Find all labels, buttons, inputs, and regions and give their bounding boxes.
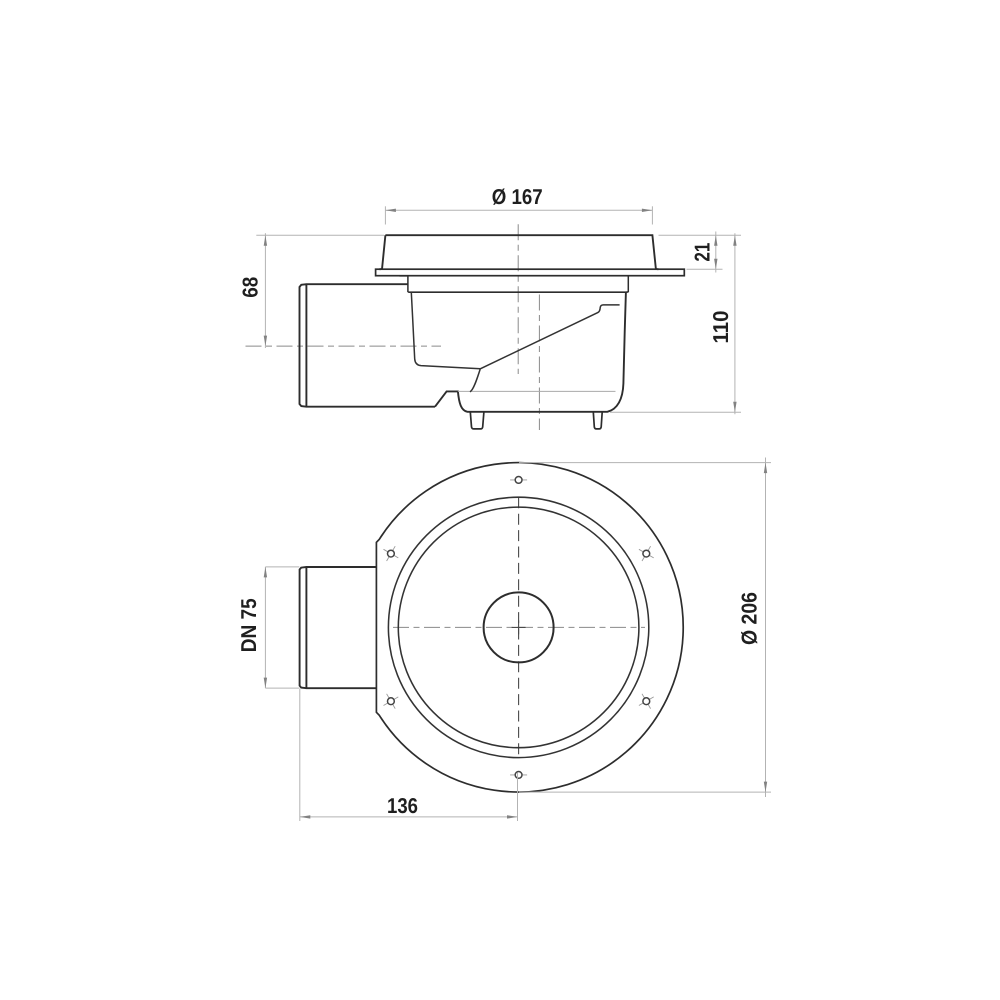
svg-text:136: 136 (387, 794, 418, 818)
svg-text:Ø 206: Ø 206 (737, 592, 761, 645)
svg-text:68: 68 (239, 277, 263, 298)
svg-text:DN 75: DN 75 (237, 598, 261, 652)
svg-text:Ø 167: Ø 167 (492, 185, 543, 209)
svg-text:110: 110 (709, 310, 733, 343)
svg-text:21: 21 (691, 243, 715, 262)
